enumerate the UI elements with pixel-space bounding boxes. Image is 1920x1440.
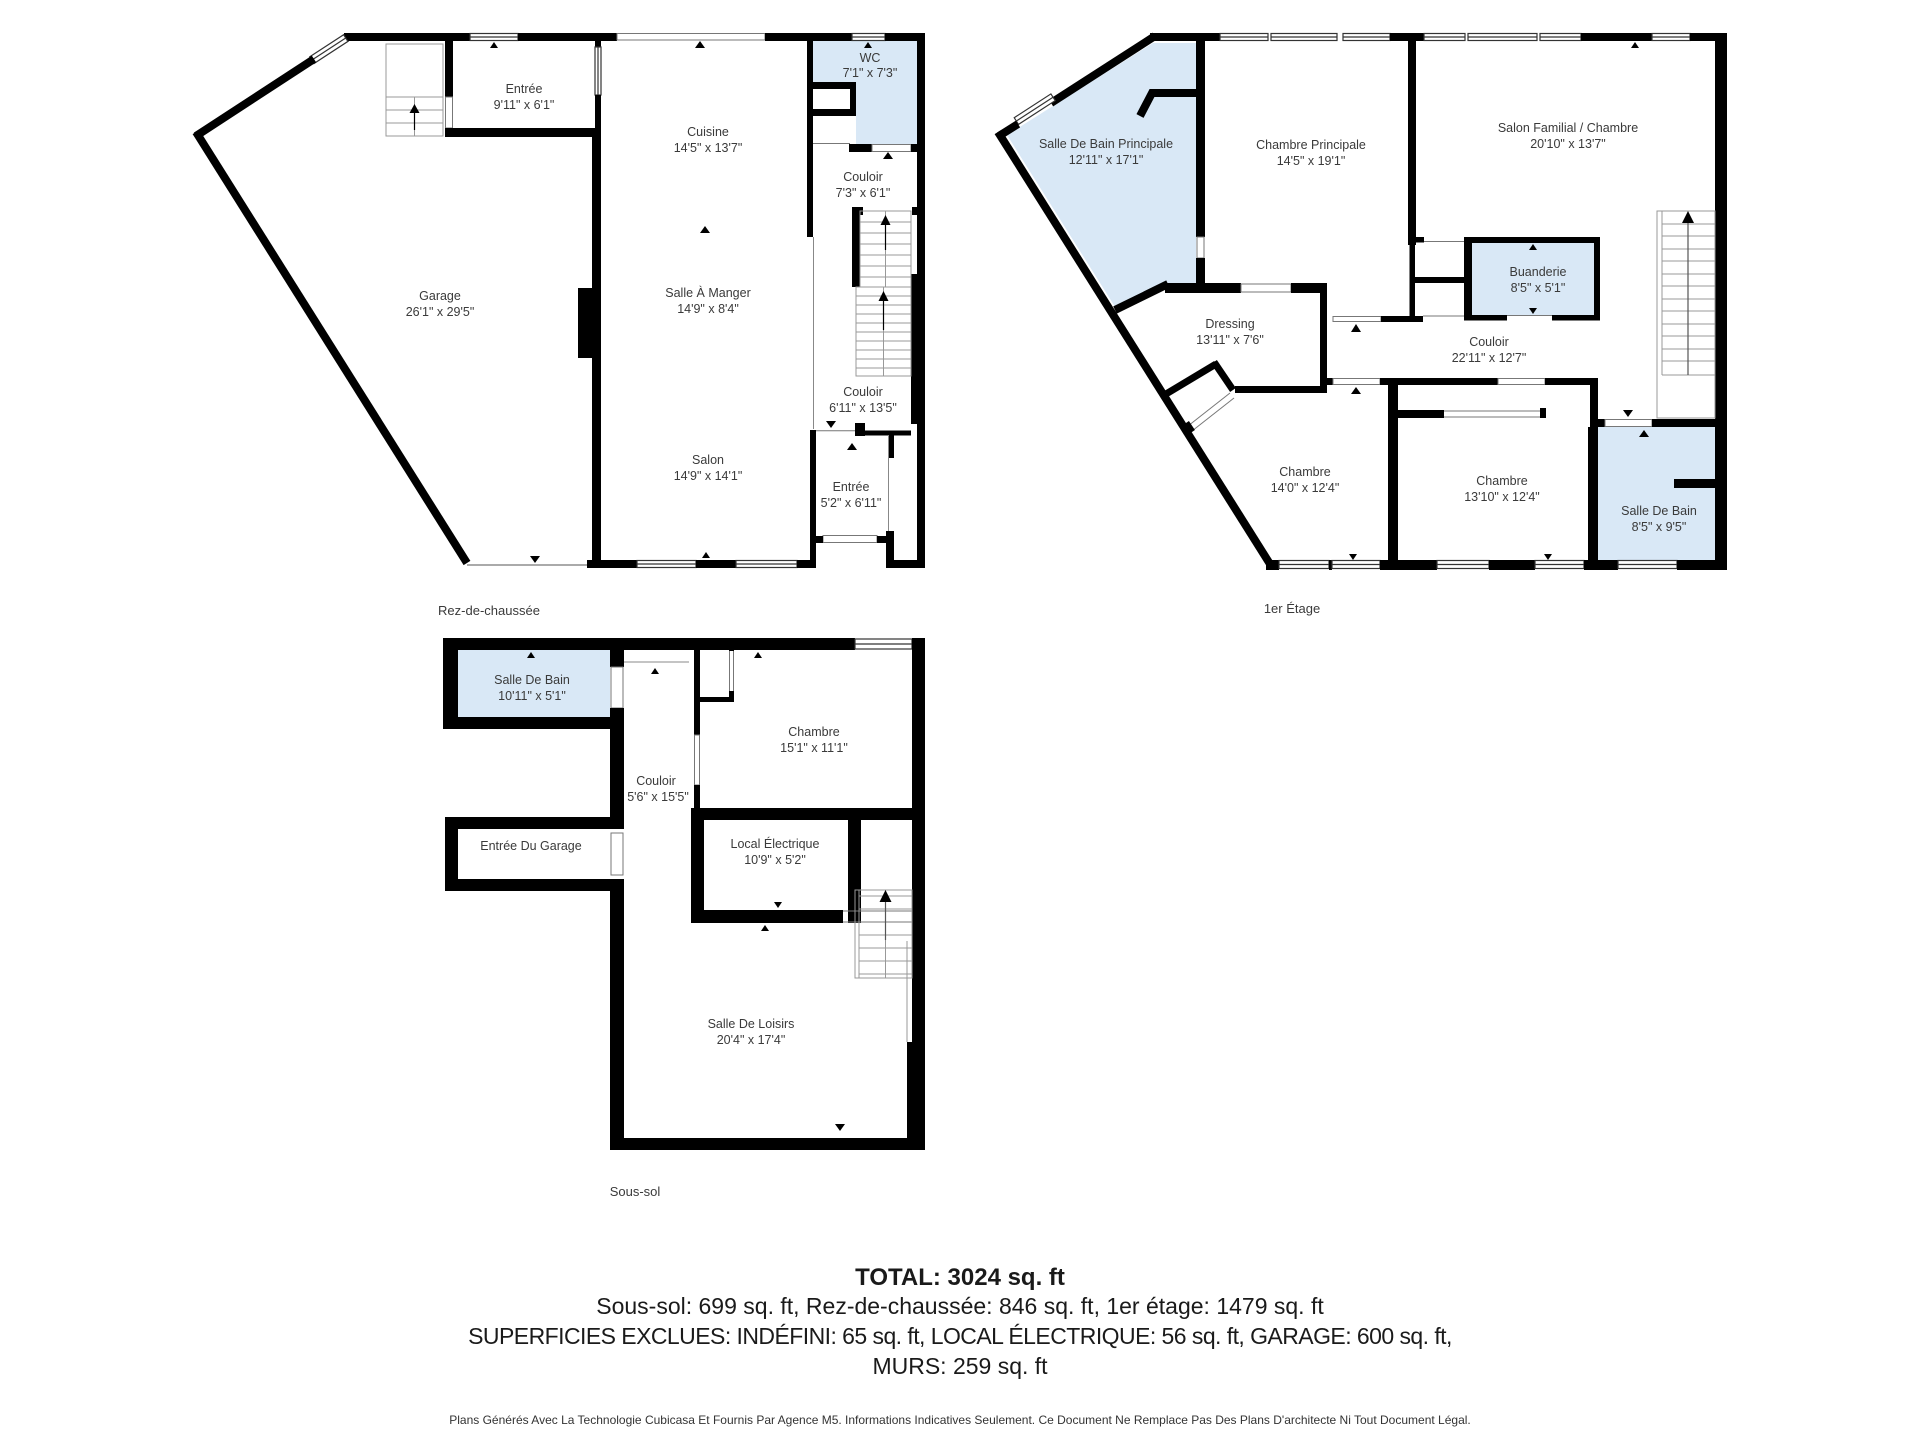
svg-text:Chambre: Chambre [1279, 465, 1330, 479]
svg-text:1er Étage: 1er Étage [1264, 601, 1320, 616]
svg-text:Salon Familial / Chambre: Salon Familial / Chambre [1498, 121, 1638, 135]
svg-text:5'2" x 6'11": 5'2" x 6'11" [821, 496, 882, 510]
svg-text:Plans Générés Avec La Technolo: Plans Générés Avec La Technologie Cubica… [449, 1413, 1471, 1427]
svg-text:22'11" x 12'7": 22'11" x 12'7" [1452, 351, 1527, 365]
svg-text:7'3" x 6'1": 7'3" x 6'1" [836, 186, 891, 200]
svg-text:Cuisine: Cuisine [687, 125, 729, 139]
svg-text:Sous-sol: 699 sq. ft, Rez-de-c: Sous-sol: 699 sq. ft, Rez-de-chaussée: 8… [596, 1293, 1324, 1319]
svg-text:14'9" x 8'4": 14'9" x 8'4" [677, 302, 739, 316]
svg-text:Local Électrique: Local Électrique [731, 836, 820, 851]
svg-text:Garage: Garage [419, 289, 461, 303]
svg-text:Entrée: Entrée [506, 82, 543, 96]
svg-text:13'11" x 7'6": 13'11" x 7'6" [1196, 333, 1264, 347]
svg-text:Rez-de-chaussée: Rez-de-chaussée [438, 603, 540, 618]
svg-text:Salle À Manger: Salle À Manger [665, 285, 750, 300]
svg-text:9'11" x 6'1": 9'11" x 6'1" [494, 98, 555, 112]
svg-text:14'0" x 12'4": 14'0" x 12'4" [1271, 481, 1340, 495]
svg-text:14'5" x 13'7": 14'5" x 13'7" [674, 141, 743, 155]
svg-text:Buanderie: Buanderie [1510, 265, 1567, 279]
svg-text:TOTAL: 3024 sq. ft: TOTAL: 3024 sq. ft [855, 1264, 1065, 1291]
svg-text:Dressing: Dressing [1205, 317, 1254, 331]
svg-text:Couloir: Couloir [843, 170, 883, 184]
svg-text:Sous-sol: Sous-sol [610, 1184, 661, 1199]
svg-text:Salle De Loisirs: Salle De Loisirs [708, 1017, 795, 1031]
svg-text:20'10" x 13'7": 20'10" x 13'7" [1530, 137, 1606, 151]
svg-text:10'11" x 5'1": 10'11" x 5'1" [498, 689, 566, 703]
svg-text:10'9" x 5'2": 10'9" x 5'2" [744, 853, 806, 867]
svg-text:Couloir: Couloir [1469, 335, 1509, 349]
svg-text:5'6" x 15'5": 5'6" x 15'5" [627, 790, 689, 804]
svg-text:14'5" x 19'1": 14'5" x 19'1" [1277, 154, 1346, 168]
svg-text:SUPERFICIES EXCLUES: INDÉFINI:: SUPERFICIES EXCLUES: INDÉFINI: 65 sq. ft… [468, 1323, 1452, 1349]
svg-text:15'1" x 11'1": 15'1" x 11'1" [780, 741, 848, 755]
svg-text:Chambre: Chambre [788, 725, 839, 739]
svg-text:MURS: 259 sq. ft: MURS: 259 sq. ft [872, 1353, 1048, 1379]
svg-text:Chambre: Chambre [1476, 474, 1527, 488]
svg-text:13'10" x 12'4": 13'10" x 12'4" [1464, 490, 1540, 504]
svg-text:6'11" x 13'5": 6'11" x 13'5" [829, 401, 897, 415]
svg-text:Salon: Salon [692, 453, 724, 467]
svg-text:Couloir: Couloir [636, 774, 676, 788]
svg-text:26'1" x 29'5": 26'1" x 29'5" [406, 305, 475, 319]
svg-text:7'1" x 7'3": 7'1" x 7'3" [843, 66, 898, 80]
svg-text:14'9" x 14'1": 14'9" x 14'1" [674, 469, 743, 483]
svg-text:Chambre Principale: Chambre Principale [1256, 138, 1366, 152]
svg-text:8'5" x 5'1": 8'5" x 5'1" [1511, 281, 1566, 295]
svg-text:Entrée: Entrée [833, 480, 870, 494]
svg-text:20'4" x 17'4": 20'4" x 17'4" [717, 1033, 786, 1047]
svg-text:Salle De Bain: Salle De Bain [494, 673, 570, 687]
svg-text:WC: WC [860, 51, 881, 65]
svg-text:Couloir: Couloir [843, 385, 883, 399]
svg-text:Salle De Bain: Salle De Bain [1621, 504, 1697, 518]
svg-text:Salle De Bain Principale: Salle De Bain Principale [1039, 137, 1173, 151]
svg-text:8'5" x 9'5": 8'5" x 9'5" [1632, 520, 1687, 534]
svg-text:12'11" x 17'1": 12'11" x 17'1" [1069, 153, 1144, 167]
svg-text:Entrée Du Garage: Entrée Du Garage [480, 839, 581, 853]
